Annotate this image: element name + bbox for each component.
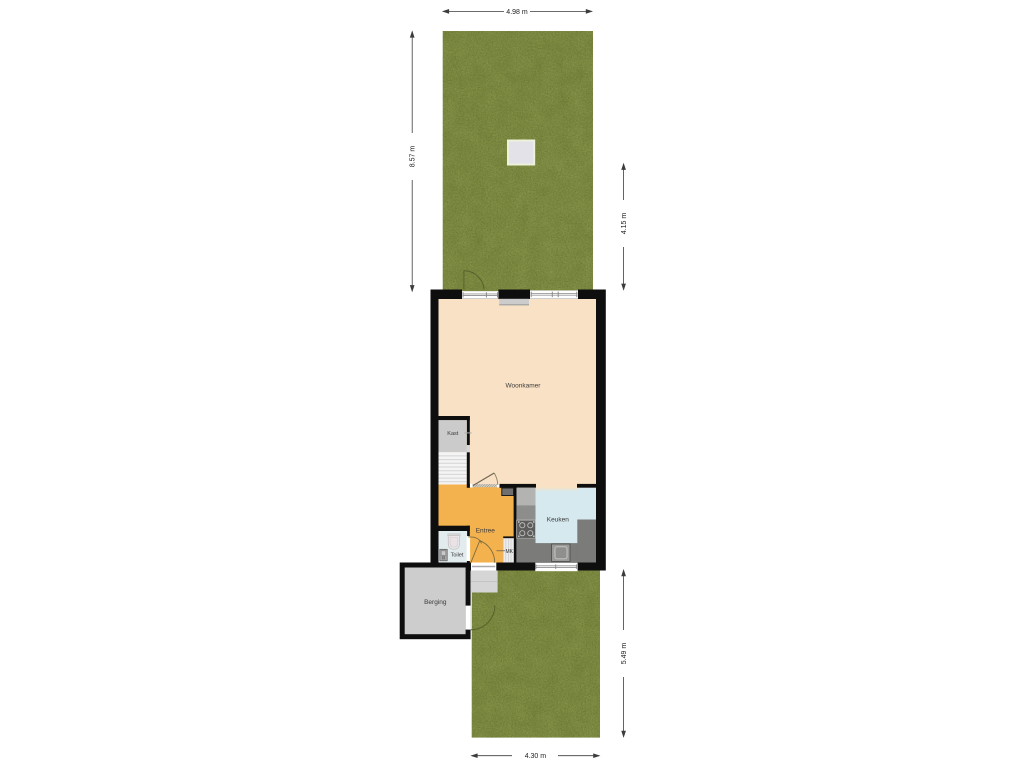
svg-text:Toilet: Toilet (451, 552, 464, 558)
svg-text:4.15 m: 4.15 m (621, 213, 628, 235)
svg-text:MK: MK (506, 549, 514, 555)
svg-text:8.57 m: 8.57 m (410, 146, 417, 168)
svg-text:Keuken: Keuken (547, 517, 569, 524)
svg-text:4.98 m: 4.98 m (506, 9, 528, 16)
svg-text:Berging: Berging (424, 599, 447, 606)
svg-text:Entree: Entree (476, 527, 496, 534)
svg-text:5.49 m: 5.49 m (621, 643, 628, 665)
svg-text:Woonkamer: Woonkamer (506, 383, 542, 390)
svg-text:Kast: Kast (447, 431, 458, 437)
svg-text:4.30 m: 4.30 m (525, 753, 547, 760)
